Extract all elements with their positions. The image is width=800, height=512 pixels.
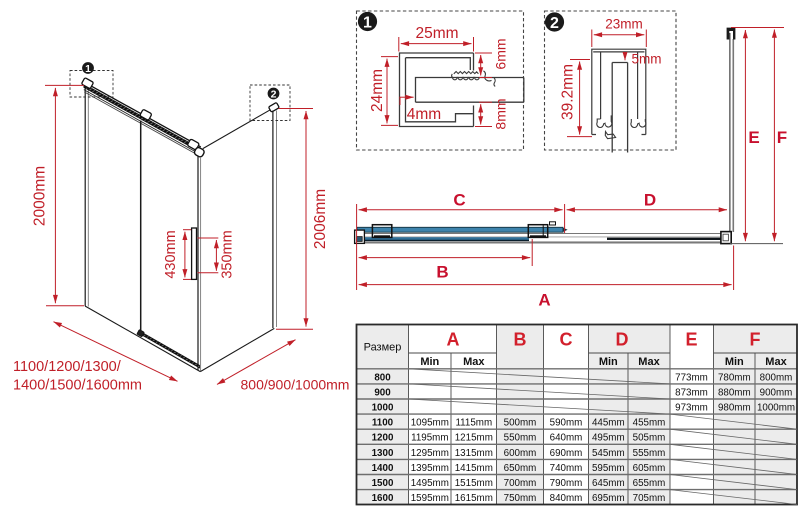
svg-text:655mm: 655mm — [633, 478, 666, 489]
svg-text:780mm: 780mm — [718, 372, 751, 383]
svg-text:840mm: 840mm — [550, 493, 583, 504]
svg-text:800mm: 800mm — [760, 372, 793, 383]
svg-text:695mm: 695mm — [592, 493, 625, 504]
svg-text:1: 1 — [85, 63, 91, 75]
svg-text:1415mm: 1415mm — [455, 463, 493, 474]
svg-text:B: B — [436, 263, 448, 282]
svg-text:1395mm: 1395mm — [411, 463, 449, 474]
svg-text:550mm: 550mm — [504, 433, 537, 444]
svg-text:555mm: 555mm — [633, 448, 666, 459]
svg-text:F: F — [750, 330, 761, 350]
svg-text:700mm: 700mm — [504, 478, 537, 489]
svg-text:Min: Min — [420, 356, 439, 368]
svg-text:39.2mm: 39.2mm — [560, 64, 577, 120]
svg-text:A: A — [447, 329, 460, 349]
svg-text:2: 2 — [271, 89, 277, 101]
svg-text:880mm: 880mm — [718, 387, 751, 398]
svg-text:650mm: 650mm — [504, 463, 537, 474]
svg-text:4mm: 4mm — [407, 106, 441, 123]
svg-text:595mm: 595mm — [592, 463, 625, 474]
svg-text:505mm: 505mm — [633, 433, 666, 444]
svg-text:750mm: 750mm — [504, 493, 537, 504]
svg-text:1500: 1500 — [372, 478, 394, 489]
svg-text:1400/1500/1600mm: 1400/1500/1600mm — [13, 378, 142, 394]
svg-text:23mm: 23mm — [605, 17, 643, 32]
svg-text:1095mm: 1095mm — [411, 418, 449, 429]
svg-text:800: 800 — [374, 372, 391, 383]
svg-text:2006mm: 2006mm — [312, 189, 329, 249]
svg-text:25mm: 25mm — [415, 25, 458, 42]
svg-text:Размер: Размер — [364, 341, 402, 353]
svg-text:640mm: 640mm — [550, 433, 583, 444]
svg-text:1315mm: 1315mm — [455, 448, 493, 459]
svg-text:1295mm: 1295mm — [411, 448, 449, 459]
svg-text:590mm: 590mm — [550, 418, 583, 429]
svg-text:1595mm: 1595mm — [411, 493, 449, 504]
svg-text:C: C — [453, 191, 465, 210]
svg-text:973mm: 973mm — [675, 403, 708, 414]
svg-text:430mm: 430mm — [163, 230, 179, 278]
svg-text:5mm: 5mm — [632, 52, 662, 67]
svg-text:790mm: 790mm — [550, 478, 583, 489]
svg-text:24mm: 24mm — [369, 69, 386, 112]
svg-text:8mm: 8mm — [493, 98, 509, 129]
svg-text:1615mm: 1615mm — [455, 493, 493, 504]
svg-text:1600: 1600 — [372, 493, 394, 504]
svg-text:B: B — [514, 330, 527, 350]
svg-text:980mm: 980mm — [718, 403, 751, 414]
svg-text:Max: Max — [463, 356, 485, 368]
svg-text:500mm: 500mm — [504, 418, 537, 429]
svg-text:1000: 1000 — [372, 403, 394, 414]
svg-text:705mm: 705mm — [633, 493, 666, 504]
svg-text:690mm: 690mm — [550, 448, 583, 459]
svg-text:1100/1200/1300/: 1100/1200/1300/ — [13, 359, 122, 375]
svg-text:800/900/1000mm: 800/900/1000mm — [241, 377, 350, 393]
svg-text:C: C — [560, 330, 573, 350]
svg-text:1000mm: 1000mm — [757, 403, 795, 414]
svg-text:Min: Min — [599, 356, 618, 368]
svg-text:873mm: 873mm — [675, 387, 708, 398]
svg-text:E: E — [748, 128, 759, 147]
svg-text:445mm: 445mm — [592, 418, 625, 429]
svg-text:495mm: 495mm — [592, 433, 625, 444]
svg-text:2: 2 — [550, 15, 559, 32]
svg-text:1215mm: 1215mm — [455, 433, 493, 444]
svg-text:1300: 1300 — [372, 448, 394, 459]
svg-text:Max: Max — [638, 356, 660, 368]
svg-text:740mm: 740mm — [550, 463, 583, 474]
svg-text:Min: Min — [725, 356, 744, 368]
svg-text:1495mm: 1495mm — [411, 478, 449, 489]
svg-text:900mm: 900mm — [760, 387, 793, 398]
svg-text:900: 900 — [374, 387, 391, 398]
svg-text:1100: 1100 — [372, 418, 394, 429]
svg-text:1195mm: 1195mm — [411, 433, 448, 444]
svg-text:605mm: 605mm — [633, 463, 666, 474]
svg-text:E: E — [685, 330, 697, 350]
svg-text:D: D — [616, 330, 629, 350]
svg-text:1200: 1200 — [372, 433, 394, 444]
svg-text:Max: Max — [765, 356, 787, 368]
svg-text:D: D — [644, 191, 656, 210]
svg-text:600mm: 600mm — [504, 448, 537, 459]
svg-text:6mm: 6mm — [493, 38, 509, 69]
svg-text:350mm: 350mm — [220, 230, 236, 278]
svg-text:1: 1 — [363, 15, 372, 32]
svg-text:645mm: 645mm — [592, 478, 625, 489]
svg-text:455mm: 455mm — [633, 418, 666, 429]
svg-text:A: A — [538, 291, 550, 310]
svg-text:1515mm: 1515mm — [455, 478, 493, 489]
svg-text:F: F — [777, 128, 787, 147]
svg-text:1115mm: 1115mm — [455, 418, 492, 429]
svg-text:1400: 1400 — [372, 463, 394, 474]
svg-text:2000mm: 2000mm — [32, 166, 49, 226]
svg-text:773mm: 773mm — [675, 372, 708, 383]
svg-text:545mm: 545mm — [592, 448, 625, 459]
